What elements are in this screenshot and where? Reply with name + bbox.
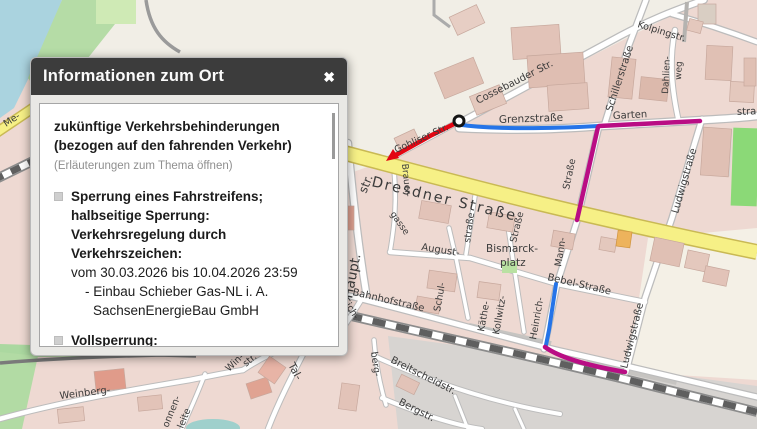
intro-line: zukünftige Verkehrsbehinderungen xyxy=(54,117,324,136)
restriction-heading: Vollsperrung: xyxy=(71,331,324,347)
map-application: Cossebauder Str. Grenzstraße Kolpingstr.… xyxy=(0,0,757,429)
street-label: Garten xyxy=(613,109,648,122)
restriction-heading: Sperrung eines Fahrstreifens; halbseitig… xyxy=(71,187,324,263)
restriction-detail: SachsenEnergieBau GmbH xyxy=(71,301,324,320)
popup-body: zukünftige Verkehrsbehinderungen (bezoge… xyxy=(31,95,347,355)
bullet-square-icon xyxy=(54,336,63,345)
location-marker[interactable] xyxy=(454,116,464,126)
restriction-item: Vollsperrung: vom 13.04.2026 bis 29.04.2… xyxy=(54,331,324,347)
popup-title: Informationen zum Ort xyxy=(43,67,224,86)
scrollbar-thumb[interactable] xyxy=(332,113,335,159)
street-label: Dahlien- xyxy=(661,56,673,94)
bullet-square-icon xyxy=(54,192,63,201)
popup-content: zukünftige Verkehrsbehinderungen (bezoge… xyxy=(39,103,339,347)
intro-line: (bezogen auf den fahrenden Verkehr) xyxy=(54,136,324,155)
street-label: Bismarck- xyxy=(486,243,538,255)
restriction-detail: - Einbau Schieber Gas-NL i. A. xyxy=(71,282,324,301)
restriction-item: Sperrung eines Fahrstreifens; halbseitig… xyxy=(54,187,324,320)
street-label: weg xyxy=(674,61,685,80)
green-area xyxy=(96,0,136,24)
info-popup: Informationen zum Ort ✖ zukünftige Verke… xyxy=(30,57,348,356)
park xyxy=(731,128,757,207)
street-label: stra xyxy=(737,106,757,118)
street-label: Grenzstraße xyxy=(499,112,564,126)
restriction-period: vom 30.03.2026 bis 10.04.2026 23:59 xyxy=(71,263,324,282)
close-icon[interactable]: ✖ xyxy=(323,70,335,84)
explanations-link[interactable]: (Erläuterungen zum Thema öffnen) xyxy=(54,157,324,176)
street-label: platz xyxy=(500,257,526,269)
popup-header: Informationen zum Ort ✖ xyxy=(31,58,347,95)
